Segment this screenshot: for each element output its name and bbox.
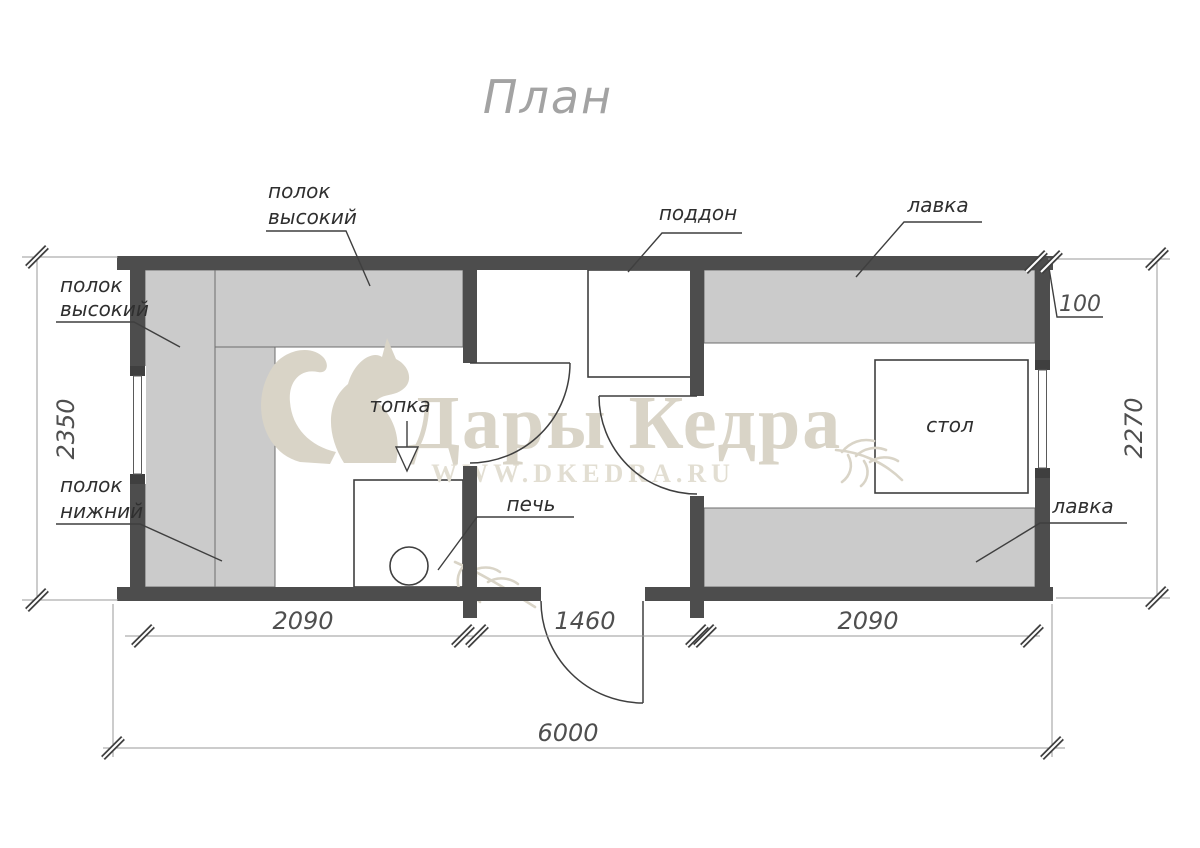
label-shelf-high-top: полок высокий: [268, 179, 357, 229]
label-table: стол: [926, 413, 974, 437]
stove-chimney-circle: [390, 547, 428, 585]
label-line: высокий: [268, 205, 357, 229]
window-left-jamb-bottom: [130, 474, 145, 484]
floor-plan-drawing: Дары Кедра WWW.DKEDRA.RU: [0, 0, 1200, 848]
dim-total-width: 6000: [537, 719, 598, 747]
wall-top: [117, 256, 1053, 270]
bench-top: [704, 270, 1035, 343]
label-firebox: топка: [369, 393, 430, 417]
shelf-high-left: [145, 270, 215, 587]
label-stove: печь: [507, 492, 556, 516]
entrance-door-opening: [541, 586, 645, 602]
watermark-brand-text: Дары Кедра: [408, 381, 843, 465]
label-bench-right: лавка: [1051, 494, 1113, 518]
window-right: [1034, 360, 1052, 478]
label-line: полок: [268, 179, 330, 203]
window-left-glass: [134, 376, 142, 474]
label-line: нижний: [60, 499, 143, 523]
partition-steam-lower: [463, 466, 477, 618]
label-line: полок: [60, 473, 122, 497]
window-right-glass: [1039, 370, 1047, 468]
label-line: высокий: [60, 297, 149, 321]
page-title: План: [483, 70, 613, 124]
dim-depth-inner: 2270: [1120, 397, 1148, 458]
window-right-jamb-bottom: [1035, 468, 1050, 478]
window-left-jamb-top: [130, 366, 145, 376]
bench-bottom: [704, 508, 1035, 587]
dim-wall-thickness: 100: [1059, 292, 1101, 317]
label-line: полок: [60, 273, 122, 297]
window-left: [128, 366, 146, 484]
label-tray: поддон: [659, 201, 737, 225]
shelf-high-top: [215, 270, 463, 347]
partition-steam-upper: [463, 256, 477, 363]
dim-washing-room-width: 1460: [554, 607, 615, 635]
floor-plan-page: Дары Кедра WWW.DKEDRA.RU: [0, 0, 1200, 848]
dim-depth-outer: 2350: [52, 398, 80, 459]
shower-tray: [588, 270, 697, 377]
window-right-jamb-top: [1035, 360, 1050, 370]
dim-rest-room-width: 2090: [837, 607, 898, 635]
dim-steam-room-width: 2090: [272, 607, 333, 635]
label-bench-top: лавка: [906, 193, 968, 217]
partition-rest-upper: [690, 256, 704, 396]
partition-rest-lower: [690, 496, 704, 618]
